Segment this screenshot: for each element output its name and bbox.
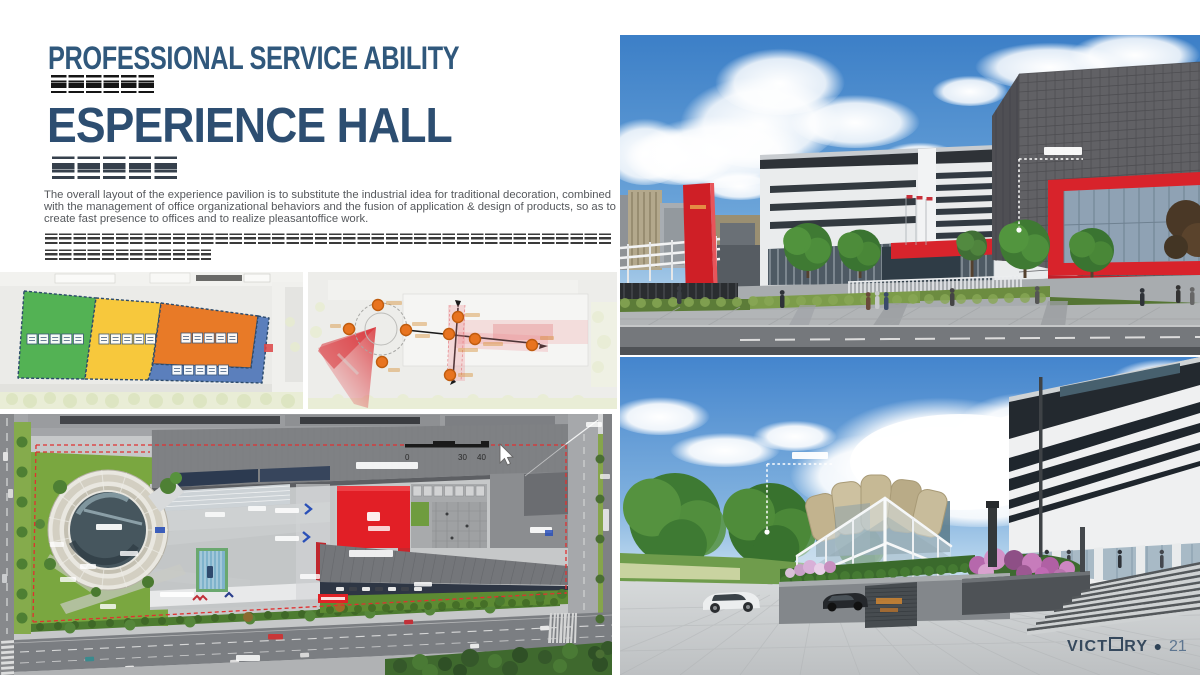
svg-text:0: 0 — [405, 453, 410, 462]
svg-text:30: 30 — [458, 453, 467, 462]
svg-text:40: 40 — [477, 453, 486, 462]
